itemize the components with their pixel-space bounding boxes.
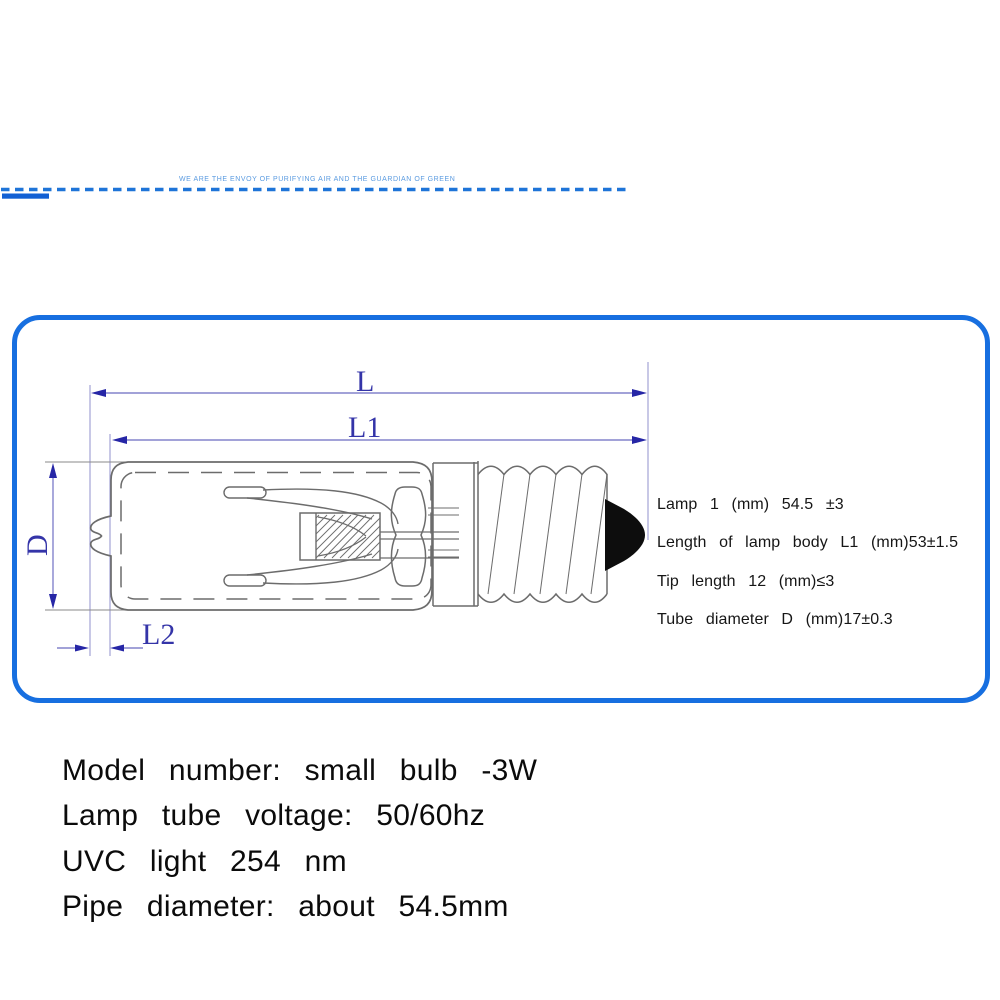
top-lead-wire-inner [247,498,372,519]
tube-inner-dashed-wall [121,473,431,600]
screw-base [428,461,645,606]
solder-contact-tip [605,499,645,571]
bottom-lead-wire [263,549,398,584]
arrowhead [110,645,124,652]
spec-line-body-length: Length of lamp body L1 (mm)53±1.5 [657,524,958,562]
arrowhead [49,463,57,478]
divider-accent-bar [2,194,49,199]
base-threads [478,466,607,602]
spec-text-block: Lamp 1 (mm) 54.5 ±3 Length of lamp body … [657,486,958,640]
detail-pipe-diameter: Pipe diameter: about 54.5mm [62,884,537,929]
stem-press [300,513,380,560]
bottom-electrode-tip [224,575,266,586]
dimension-label-D: D [21,534,54,556]
electrode-assembly [224,487,459,586]
top-electrode-tip [224,487,266,498]
arrowhead [91,389,106,397]
diameter-extension-lines [45,462,148,610]
arrowhead [632,436,647,444]
details-text-block: Model number: small bulb -3W Lamp tube v… [62,748,537,930]
spec-line-tip-length: Tip length 12 (mm)≤3 [657,563,958,601]
stem-press-hatching [316,515,380,558]
dimension-L: L [91,365,647,398]
spec-line-lamp-length: Lamp 1 (mm) 54.5 ±3 [657,486,958,524]
thread-flank-lines [488,474,607,594]
dimension-label-L1: L1 [348,411,381,444]
dimension-label-L2: L2 [142,618,175,651]
detail-model-number: Model number: small bulb -3W [62,748,537,793]
product-image-stage: WE ARE THE ENVOY OF PURIFYING AIR AND TH… [0,0,1000,1000]
spec-line-tube-diameter: Tube diameter D (mm)17±0.3 [657,601,958,639]
dimension-L2: L2 [57,618,175,652]
lamp-tube [91,462,432,610]
stem-support-bead [391,487,425,586]
arrowhead [75,645,89,652]
base-collar [428,461,478,606]
dimension-L1: L1 [112,411,647,444]
bottom-lead-wire-inner [247,554,372,575]
dimension-D: D [21,463,57,609]
arrowhead [49,594,57,609]
extension-lines [90,362,648,656]
dimension-label-L: L [356,365,374,398]
top-lead-wire [263,489,398,524]
detail-voltage: Lamp tube voltage: 50/60hz [62,793,537,838]
detail-uvc-wavelength: UVC light 254 nm [62,839,537,884]
banner-divider [1,190,627,199]
tube-outline [91,462,432,610]
arrowhead [112,436,127,444]
arrowhead [632,389,647,397]
